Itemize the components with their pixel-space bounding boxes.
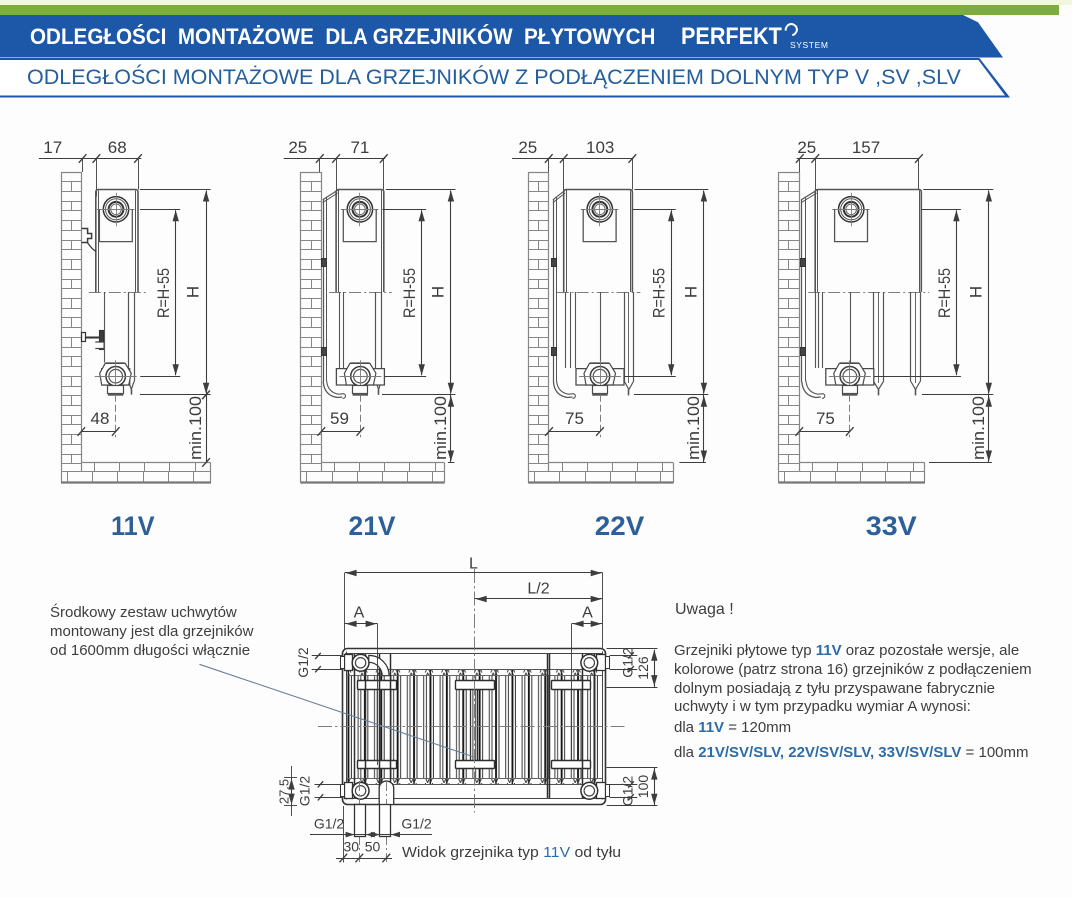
svg-text:G1/2: G1/2 xyxy=(620,647,636,678)
svg-text:75: 75 xyxy=(816,409,835,428)
svg-text:11V: 11V xyxy=(111,511,155,541)
svg-text:25: 25 xyxy=(288,138,307,157)
svg-text:min.100: min.100 xyxy=(431,396,450,460)
svg-text:L: L xyxy=(469,556,478,573)
svg-text:H: H xyxy=(681,286,700,298)
svg-text:H: H xyxy=(184,286,203,298)
svg-text:71: 71 xyxy=(350,138,369,157)
svg-text:A: A xyxy=(354,605,365,622)
svg-text:100: 100 xyxy=(635,775,651,799)
svg-text:min.100: min.100 xyxy=(684,396,703,460)
svg-text:17: 17 xyxy=(43,138,62,157)
svg-text:G1/2: G1/2 xyxy=(401,816,432,832)
svg-text:A: A xyxy=(582,605,593,622)
svg-text:G1/2: G1/2 xyxy=(297,776,313,807)
svg-text:R=H-55: R=H-55 xyxy=(650,268,669,318)
svg-text:H: H xyxy=(966,286,985,298)
svg-text:59: 59 xyxy=(330,409,349,428)
svg-text:27.5: 27.5 xyxy=(277,779,292,804)
svg-text:R=H-55: R=H-55 xyxy=(935,268,954,318)
svg-text:Widok grzejnika typ 11V od tył: Widok grzejnika typ 11V od tyłu xyxy=(402,844,621,861)
svg-text:25: 25 xyxy=(797,138,816,157)
svg-text:L/2: L/2 xyxy=(527,581,549,598)
svg-text:50: 50 xyxy=(365,839,381,855)
svg-text:25: 25 xyxy=(518,138,537,157)
svg-text:33V: 33V xyxy=(866,511,917,541)
svg-text:G1/2: G1/2 xyxy=(295,647,311,678)
svg-text:H: H xyxy=(428,286,447,298)
svg-text:22V: 22V xyxy=(595,511,645,541)
svg-text:68: 68 xyxy=(108,138,127,157)
svg-text:75: 75 xyxy=(565,409,584,428)
svg-text:48: 48 xyxy=(91,409,110,428)
svg-text:30: 30 xyxy=(344,839,360,855)
svg-text:G1/2: G1/2 xyxy=(620,776,636,807)
svg-text:21V: 21V xyxy=(349,511,396,541)
svg-text:157: 157 xyxy=(852,138,880,157)
svg-text:R=H-55: R=H-55 xyxy=(154,268,173,318)
svg-text:R=H-55: R=H-55 xyxy=(400,268,419,318)
svg-text:G1/2: G1/2 xyxy=(314,816,345,832)
svg-text:min.100: min.100 xyxy=(969,396,988,460)
svg-text:103: 103 xyxy=(586,138,614,157)
svg-text:min.100: min.100 xyxy=(186,396,205,460)
svg-text:126: 126 xyxy=(635,656,651,680)
